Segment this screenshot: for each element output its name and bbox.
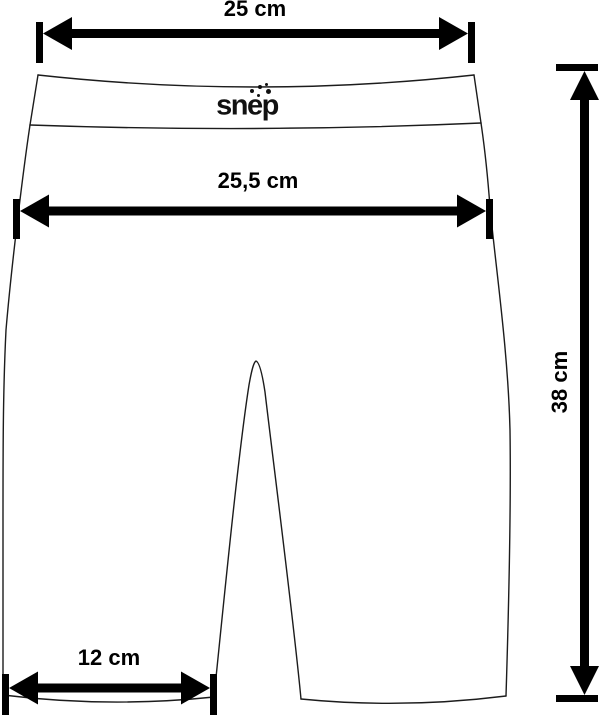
top-arrow-right-cap bbox=[468, 22, 475, 63]
waist-arrow-left-head bbox=[20, 195, 49, 228]
waist-arrow-left-cap bbox=[13, 199, 20, 239]
top-width-label: 25 cm bbox=[224, 0, 286, 21]
hem-arrow-left-head bbox=[9, 672, 38, 705]
logo-dot-icon bbox=[265, 83, 268, 86]
length-arrow-up-head bbox=[570, 71, 599, 100]
hem-arrow-right-cap bbox=[210, 674, 217, 715]
shorts-size-diagram: 25 cm 25,5 cm 12 cm 38 cm snep bbox=[0, 0, 600, 718]
brand-logo: snep bbox=[216, 90, 278, 123]
inner-legs-crotch-seam bbox=[214, 361, 301, 699]
right-outer-seam bbox=[481, 123, 510, 696]
logo-dot-icon bbox=[250, 89, 254, 93]
length-arrow-top-cap bbox=[556, 64, 598, 71]
waistband-left-edge bbox=[30, 75, 38, 125]
waistband-right-edge bbox=[474, 75, 481, 123]
length-arrow-shaft bbox=[580, 92, 589, 674]
hem-width-dimension-arrow bbox=[2, 672, 217, 716]
right-leg-hem-edge bbox=[301, 696, 506, 703]
brand-logo-text: snep bbox=[216, 90, 278, 122]
length-arrow-down-head bbox=[570, 666, 599, 695]
logo-dot-icon bbox=[258, 85, 262, 89]
top-arrow-shaft bbox=[55, 29, 456, 38]
diagram-drawing bbox=[0, 0, 600, 718]
logo-dot-icon bbox=[257, 94, 260, 97]
top-arrow-left-cap bbox=[36, 22, 43, 63]
hem-arrow-left-cap bbox=[2, 674, 9, 715]
waist-arrow-right-head bbox=[457, 195, 486, 228]
length-label: 38 cm bbox=[548, 351, 572, 413]
dimension-arrows bbox=[2, 17, 599, 715]
length-arrow-bottom-cap bbox=[556, 695, 598, 702]
waist-arrow-right-cap bbox=[486, 199, 493, 239]
waist-arrow-shaft bbox=[32, 207, 474, 216]
waist-width-dimension-arrow bbox=[13, 195, 493, 240]
top-arrow-right-head bbox=[439, 17, 468, 50]
hem-width-label: 12 cm bbox=[78, 646, 140, 670]
waistband-top-edge bbox=[38, 75, 474, 87]
top-arrow-left-head bbox=[43, 17, 72, 50]
waistband-bottom-edge bbox=[30, 123, 481, 129]
hem-arrow-shaft bbox=[18, 684, 201, 693]
top-width-dimension-arrow bbox=[36, 17, 475, 63]
waist-width-label: 25,5 cm bbox=[218, 169, 299, 193]
logo-dot-icon bbox=[266, 89, 271, 94]
hem-arrow-right-head bbox=[181, 672, 210, 705]
